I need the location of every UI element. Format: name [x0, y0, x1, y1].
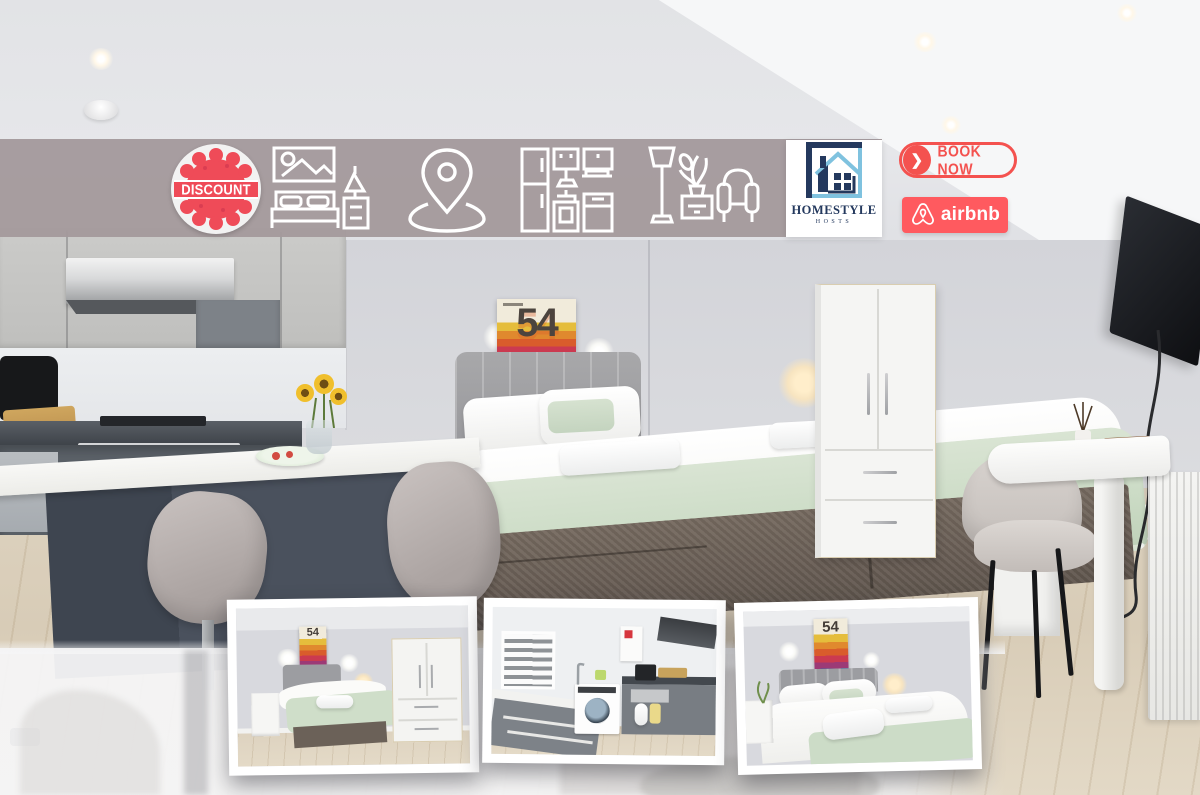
thumb-wood-caddy — [658, 667, 687, 678]
cabinet-seam — [280, 232, 282, 348]
discount-band: DISCOUNT — [174, 180, 258, 199]
airbnb-badge[interactable]: airbnb — [902, 197, 1008, 233]
extractor-hood — [66, 258, 234, 304]
stool-silhouette — [184, 650, 208, 795]
kitchen-units-icon — [520, 146, 614, 232]
homestyle-wordmark: HOMESTYLE — [791, 203, 876, 218]
flower-vase — [306, 420, 332, 454]
desk-pillar-leg — [1094, 474, 1124, 690]
ceiling-spotlight — [88, 48, 114, 70]
sage-cushion — [547, 398, 615, 433]
living-room-furniture-icon — [640, 146, 766, 232]
sunflower — [330, 388, 347, 405]
thumb-faucet — [568, 661, 588, 685]
hosts-wordmark: HOSTS — [816, 219, 853, 225]
radiator — [1148, 472, 1200, 720]
ceiling-spotlight — [940, 116, 962, 134]
thumb-nightstand — [251, 693, 279, 736]
homestyle-hosts-logo: HOMESTYLE HOSTS — [786, 140, 882, 237]
ceiling-spotlight — [912, 32, 938, 52]
thumb-lower-cabinets — [621, 685, 716, 736]
book-now-label: BOOK NOW — [938, 142, 1014, 177]
smoke-detector — [84, 100, 118, 120]
thumb-extractor-hood — [657, 616, 717, 648]
book-now-button[interactable]: ❯ BOOK NOW — [899, 142, 1017, 178]
thumb-poster: 54 — [813, 618, 848, 674]
wardrobe — [815, 284, 936, 558]
wardrobe-drawer-handle — [863, 471, 897, 474]
sunflower — [296, 384, 314, 402]
thumb-plant — [752, 679, 775, 704]
bedroom-photo-icon — [268, 146, 370, 232]
thumb-coffee-machine — [635, 664, 655, 680]
thumbnail-bed-closeup[interactable]: 54 — [734, 597, 982, 775]
thumb-window-blinds — [501, 630, 555, 689]
wardrobe-drawer-handle — [863, 521, 897, 524]
chevron-right-icon: ❯ — [903, 145, 931, 175]
airbnb-wordmark: airbnb — [941, 204, 1000, 226]
thumb-wardrobe — [392, 637, 463, 742]
location-pin-icon — [402, 146, 492, 232]
thumbnail-bedroom[interactable]: 54 — [227, 596, 479, 775]
thumb-washing-machine — [574, 684, 619, 734]
homestyle-house-icon — [800, 140, 868, 202]
discount-badge: DISCOUNT — [171, 144, 261, 234]
listing-hero-image: 54 — [0, 0, 1200, 795]
thumb-dish-soap — [595, 670, 606, 680]
thumb-boiler — [620, 626, 643, 661]
poster-number: 54 — [497, 303, 576, 343]
wardrobe-door-handle — [867, 373, 870, 415]
ceiling-spotlight — [1116, 4, 1138, 22]
hob — [100, 416, 206, 426]
discount-label: DISCOUNT — [181, 181, 251, 198]
thumbnail-kitchen[interactable] — [482, 598, 726, 766]
airbnb-belo-icon — [910, 201, 936, 229]
wardrobe-door-handle — [885, 373, 888, 415]
thumb-nightstand — [745, 700, 773, 744]
kitchen-cabinet-gray — [196, 300, 280, 350]
